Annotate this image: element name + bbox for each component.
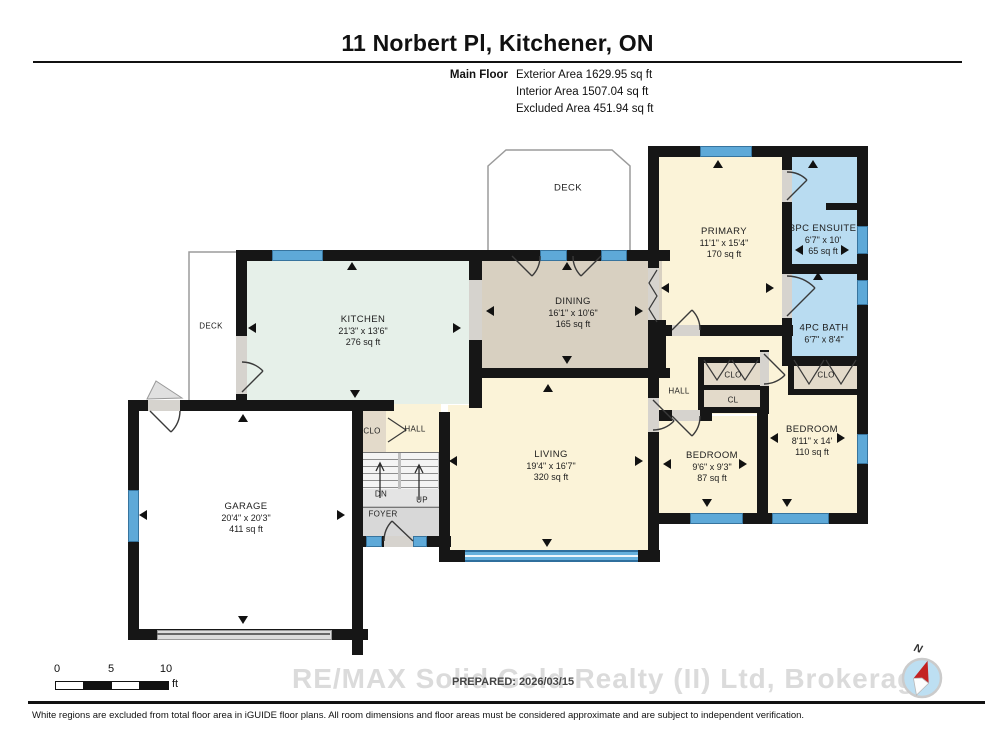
window: [465, 550, 638, 562]
window: [690, 513, 743, 524]
staircase: [360, 452, 440, 508]
window: [857, 280, 868, 305]
bedroom1-door: [672, 410, 700, 421]
window: [772, 513, 829, 524]
room-label-deck-top: DECK: [554, 182, 582, 194]
window: [540, 250, 567, 261]
stair-flight-up: [401, 453, 438, 489]
window: [857, 226, 868, 254]
brokerage-watermark: RE/MAX Solid Gold Realty (II) Ltd, Broke…: [292, 663, 932, 695]
floorplan-page: 11 Norbert Pl, Kitchener, ON Main Floor …: [0, 0, 995, 751]
window: [601, 250, 627, 261]
room-label-bath: 4PC BATH6'7" x 8'4": [800, 323, 849, 346]
floor-label: Main Floor: [360, 69, 508, 81]
primary-door: [672, 325, 700, 336]
header-divider: [33, 61, 962, 63]
room-label-foyer: FOYER: [368, 508, 397, 520]
bath-room: [790, 270, 862, 360]
closet-label: CLO: [724, 369, 741, 381]
kitchen-deck-door: [236, 336, 247, 394]
living-hall-door: [648, 398, 659, 432]
room-label-kitchen: KITCHEN21'3" x 13'6"276 sq ft: [338, 314, 387, 349]
kitchen-dining-opening: [469, 280, 482, 340]
room-label-primary: PRIMARY11'1" x 15'4"170 sq ft: [700, 226, 749, 261]
stair-flight-down: [361, 453, 398, 489]
window: [128, 490, 139, 542]
scale-unit: ft: [172, 678, 178, 690]
bath-door: [782, 274, 792, 318]
room-label-hall-right: HALL: [668, 385, 689, 397]
compass-north-label: N: [912, 642, 923, 656]
page-title: 11 Norbert Pl, Kitchener, ON: [0, 30, 995, 57]
closet-label: CLO: [817, 369, 834, 381]
ensuite-door: [782, 170, 792, 202]
front-door: [384, 536, 413, 547]
stairs-up-label: UP: [416, 494, 428, 506]
living-room: [448, 405, 484, 558]
window: [272, 250, 323, 261]
scale-tick: 5: [108, 663, 114, 675]
room-label-bedroom2: BEDROOM8'11" x 14'110 sq ft: [786, 424, 838, 459]
room-label-dining: DINING16'1" x 10'6"165 sq ft: [548, 296, 597, 331]
window: [413, 536, 427, 547]
garage-vehicle-door: [157, 630, 332, 640]
disclaimer-text: White regions are excluded from total fl…: [32, 710, 962, 721]
scale-tick: 0: [54, 663, 60, 675]
room-label-deck-left: DECK: [199, 320, 222, 332]
stat-excluded: Excluded Area 451.94 sq ft: [516, 103, 736, 115]
stat-interior: Interior Area 1507.04 sq ft: [516, 86, 736, 98]
footer-divider: [28, 701, 985, 704]
closet-label: CL: [728, 394, 739, 406]
closet-label: CLO: [363, 425, 380, 437]
scale-bar-segments: [55, 681, 167, 688]
stairs-down-label: DN: [375, 488, 387, 500]
scale-tick: 10: [160, 663, 172, 675]
window: [857, 434, 868, 464]
window: [700, 146, 752, 157]
window: [366, 536, 382, 547]
prepared-date: PREPARED: 2026/03/15: [452, 676, 574, 688]
room-label-garage: GARAGE20'4" x 20'3"411 sq ft: [221, 501, 270, 536]
garage-side-door: [148, 400, 180, 411]
bedroom2-door: [760, 352, 769, 386]
room-label-bedroom1: BEDROOM9'6" x 9'3"87 sq ft: [686, 450, 738, 485]
sliding-door: [648, 268, 659, 320]
stat-exterior: Exterior Area 1629.95 sq ft: [516, 69, 736, 81]
room-label-hall-mid: HALL: [404, 423, 425, 435]
room-label-living: LIVING19'4" x 16'7"320 sq ft: [526, 449, 575, 484]
